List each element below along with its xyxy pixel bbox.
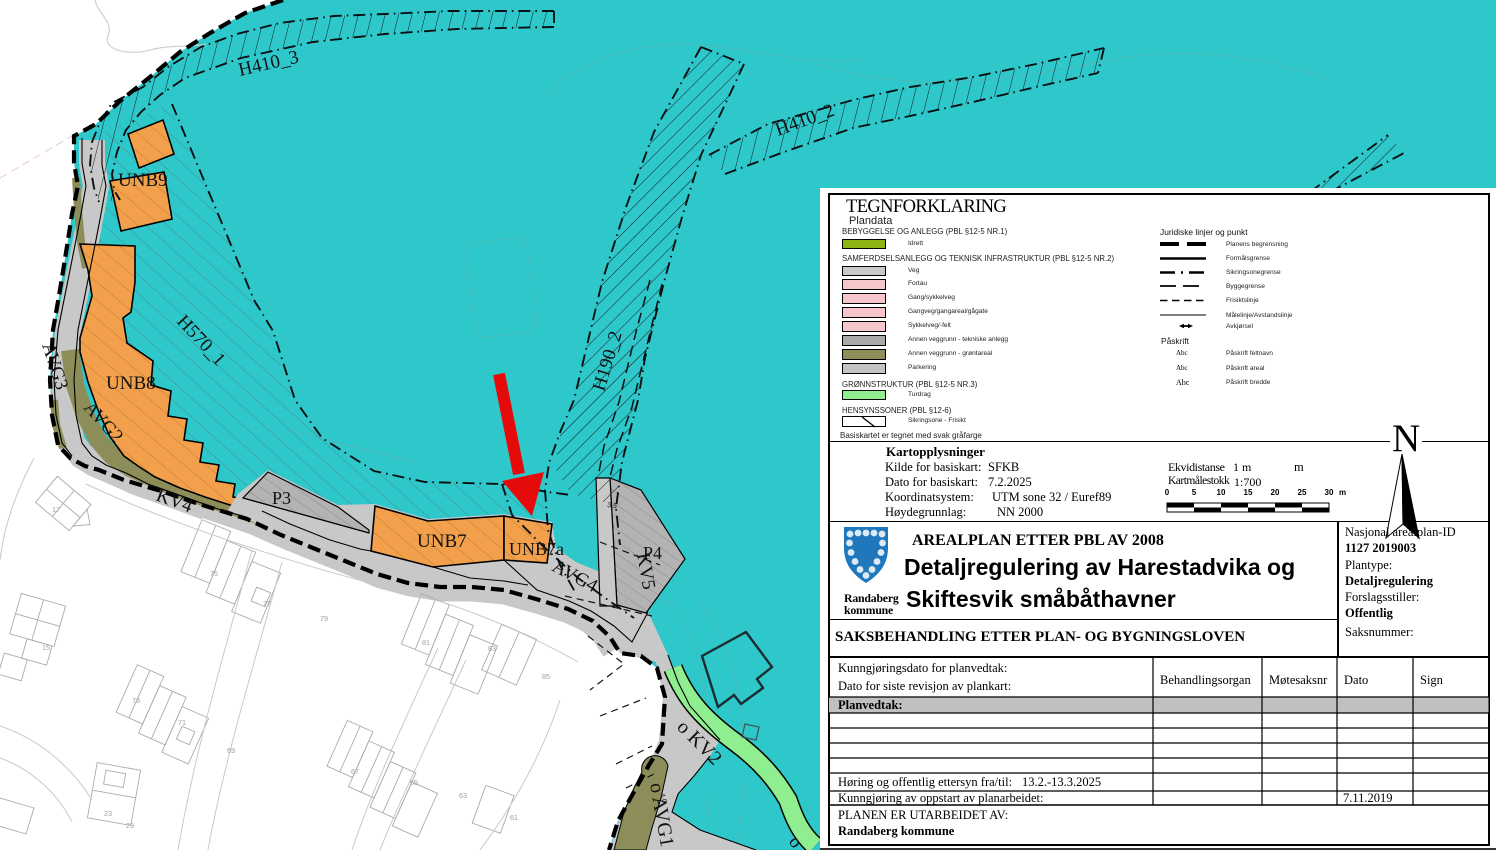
svg-text:63: 63 bbox=[459, 791, 467, 800]
svg-text:0: 0 bbox=[1165, 488, 1170, 497]
svg-text:23: 23 bbox=[104, 809, 112, 818]
svg-text:65: 65 bbox=[410, 778, 418, 787]
svg-text:UNB9: UNB9 bbox=[118, 170, 168, 191]
svg-text:m: m bbox=[1339, 488, 1346, 497]
svg-text:3.5: 3.5 bbox=[607, 502, 618, 510]
svg-text:25: 25 bbox=[1298, 488, 1307, 497]
svg-text:75: 75 bbox=[210, 569, 218, 578]
svg-text:81: 81 bbox=[422, 638, 430, 647]
svg-text:UNB7: UNB7 bbox=[417, 531, 467, 552]
svg-text:20: 20 bbox=[1271, 488, 1280, 497]
svg-text:69: 69 bbox=[227, 746, 235, 755]
svg-text:UNB7a: UNB7a bbox=[509, 539, 564, 559]
svg-text:15: 15 bbox=[42, 643, 50, 652]
svg-text:83: 83 bbox=[488, 644, 496, 653]
svg-text:10: 10 bbox=[1217, 488, 1226, 497]
svg-text:17: 17 bbox=[52, 505, 60, 514]
svg-text:15: 15 bbox=[1244, 488, 1253, 497]
svg-text:P3: P3 bbox=[272, 488, 291, 508]
svg-text:79: 79 bbox=[320, 614, 328, 623]
svg-text:5: 5 bbox=[1192, 488, 1197, 497]
svg-text:29: 29 bbox=[126, 821, 134, 830]
svg-text:UNB8: UNB8 bbox=[106, 373, 156, 394]
svg-text:77: 77 bbox=[263, 599, 271, 608]
svg-text:67: 67 bbox=[351, 767, 359, 776]
svg-text:61: 61 bbox=[510, 813, 518, 822]
svg-text:30: 30 bbox=[1325, 488, 1334, 497]
svg-text:85: 85 bbox=[542, 672, 550, 681]
svg-text:73: 73 bbox=[132, 696, 140, 705]
svg-text:71: 71 bbox=[178, 718, 186, 727]
